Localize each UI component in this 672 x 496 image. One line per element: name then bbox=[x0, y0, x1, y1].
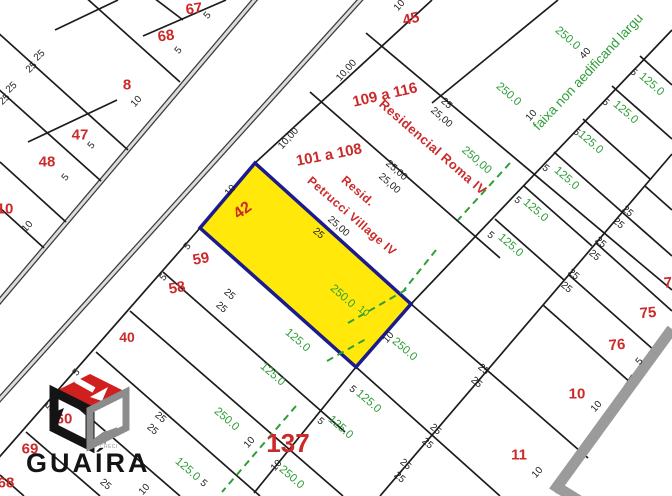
lot-number: 67 bbox=[185, 0, 204, 17]
lot-number: 10 bbox=[569, 387, 586, 402]
dimension-label: 5 bbox=[173, 46, 184, 57]
logo-cube-icon bbox=[44, 366, 140, 456]
dimension-label: 25 bbox=[469, 376, 484, 391]
dimension-label: 25 bbox=[33, 49, 48, 64]
survey-dimension: 250.0 bbox=[211, 406, 240, 434]
dimension-label: 25 bbox=[392, 471, 407, 486]
dimension-label: 25 bbox=[559, 281, 574, 296]
survey-dimension: 125.0 bbox=[325, 414, 354, 442]
lot-number: 45 bbox=[401, 10, 421, 29]
dimension-label: 5 bbox=[86, 141, 97, 152]
survey-dimension: 250.0 bbox=[493, 81, 522, 109]
lot-number: 75 bbox=[639, 305, 657, 321]
lot-number: 8 bbox=[123, 78, 131, 93]
dimension-label: 5 bbox=[540, 163, 551, 174]
survey-dimension: 250.0 bbox=[276, 464, 305, 492]
dimension-label: 25 bbox=[311, 227, 326, 242]
dimension-label: 10,00 bbox=[277, 126, 301, 151]
dimension-label: 10 bbox=[224, 184, 239, 199]
dimension-label: 25 bbox=[214, 301, 229, 316]
logo-brand: GUAÍRA bbox=[26, 448, 151, 479]
survey-dimension: 250.0 bbox=[552, 25, 581, 53]
dimension-label: 5 bbox=[315, 416, 326, 427]
survey-dimension: 125.0 bbox=[282, 327, 311, 355]
lot-number: 59 bbox=[191, 250, 210, 268]
dimension-label: 25 bbox=[566, 268, 581, 283]
dimension-label: 10 bbox=[21, 220, 36, 235]
cube-top-face bbox=[54, 374, 126, 410]
agency-logo: CRECI GUAÍRA bbox=[18, 360, 208, 490]
dimension-label: 25 bbox=[428, 423, 443, 438]
lot-map: 6768847481045109 a 116101 a 108425958406… bbox=[0, 0, 672, 496]
dimension-label: 25 bbox=[620, 205, 635, 220]
lot-number: 42 bbox=[231, 199, 255, 222]
survey-dimension: 125.0 bbox=[636, 71, 665, 99]
survey-dimension: 125.0 bbox=[495, 232, 524, 260]
dimension-label: 5 bbox=[485, 230, 496, 241]
lot-number: 68 bbox=[0, 476, 14, 491]
dimension-label: 5 bbox=[634, 357, 645, 368]
dimension-label: 5 bbox=[202, 11, 213, 22]
dimension-label: 5 bbox=[60, 173, 71, 184]
survey-dimension: 125.0 bbox=[551, 165, 580, 193]
lot-number: 48 bbox=[39, 155, 56, 170]
survey-dimension: 250.0 bbox=[327, 283, 356, 311]
lot-number: 68 bbox=[157, 27, 176, 44]
dimension-label: 25 bbox=[476, 363, 491, 378]
lot-number: 76 bbox=[608, 337, 626, 353]
dimension-label: 25 bbox=[587, 249, 602, 264]
dimension-label: 10 bbox=[130, 95, 145, 110]
dimension-label: 25 bbox=[25, 61, 40, 76]
survey-dimension: 10 bbox=[356, 305, 371, 320]
lot-number: 137 bbox=[266, 430, 309, 456]
dimension-label: 25 bbox=[420, 437, 435, 452]
dimension-label: 25 bbox=[222, 288, 237, 303]
dimension-label: 5 bbox=[600, 97, 611, 108]
survey-dimension: 125.0 bbox=[575, 129, 604, 157]
lot-number: 40 bbox=[119, 330, 135, 344]
survey-dimension: 250.0 bbox=[389, 336, 418, 364]
dimension-label: 25,00 bbox=[428, 106, 453, 130]
lot-number: 11 bbox=[511, 448, 527, 463]
survey-dimension: 125.0 bbox=[520, 197, 549, 225]
lot-number: 7 bbox=[663, 275, 672, 291]
dimension-label: 10 bbox=[531, 466, 546, 481]
dimension-label: 25 bbox=[611, 217, 626, 232]
dimension-label: 5 bbox=[182, 242, 193, 253]
lot-number: 101 a 108 bbox=[295, 141, 363, 168]
lot-number: 47 bbox=[72, 128, 89, 143]
dimension-label: 10 bbox=[590, 400, 605, 415]
dimension-label: 5 bbox=[628, 67, 639, 78]
survey-dimension: 125.0 bbox=[257, 361, 286, 389]
lot-number: 10 bbox=[0, 202, 13, 217]
lot-number: 58 bbox=[167, 279, 186, 297]
survey-dimension: 125.0 bbox=[610, 99, 639, 127]
dimension-label: 10 bbox=[243, 436, 258, 451]
dimension-label: 10,00 bbox=[335, 58, 359, 83]
survey-dimension: 125.0 bbox=[353, 388, 382, 416]
